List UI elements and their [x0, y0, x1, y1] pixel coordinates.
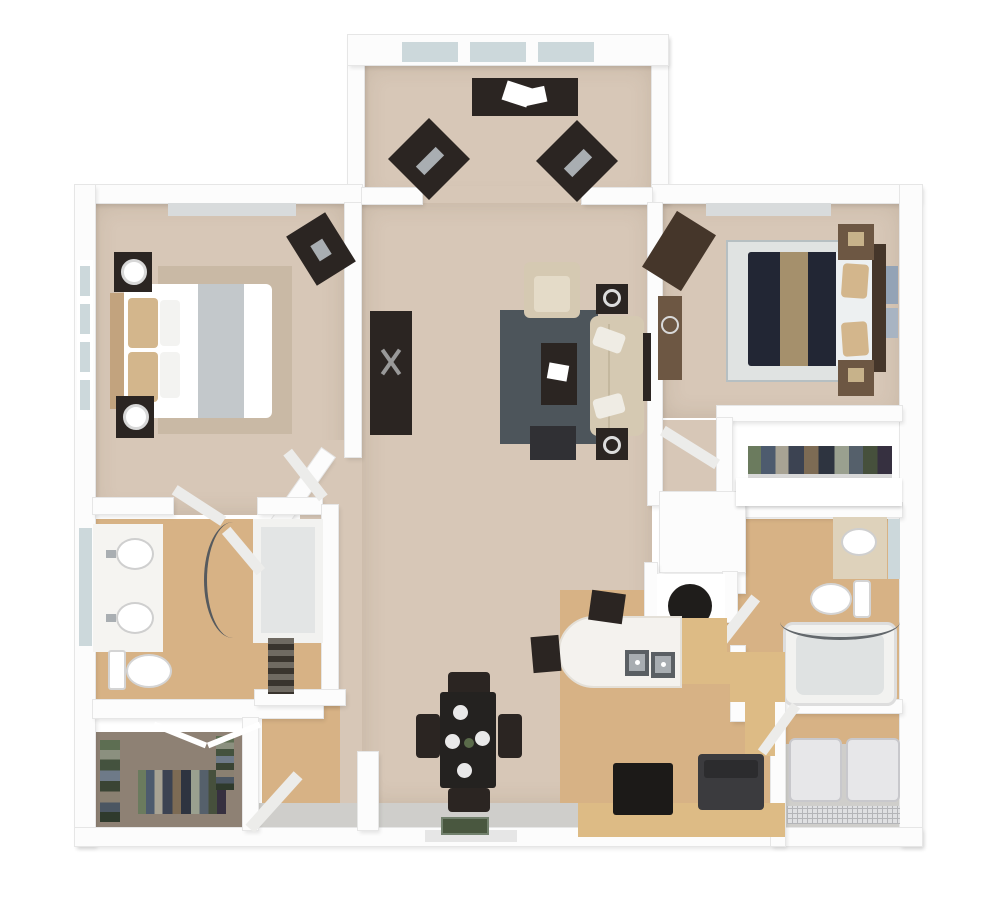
bar-stool	[530, 635, 561, 673]
masterbath-faucet	[106, 614, 116, 622]
bedroom2-pillow	[841, 321, 869, 357]
dining-chair	[448, 788, 490, 812]
master-left-window-pane	[80, 380, 90, 410]
bedroom2-bookshelf-mirror	[661, 316, 679, 334]
bedroom2-window-lintel	[706, 203, 831, 216]
entry-doormat	[441, 817, 489, 835]
coffee-table-papers	[547, 362, 569, 381]
dining-plate	[453, 705, 468, 720]
bedroom2-wall-art	[886, 266, 898, 304]
dining-chair	[498, 714, 522, 758]
kitchen-sink-drain	[635, 660, 640, 665]
ottoman	[530, 426, 576, 460]
masterbath-toilet-bowl	[126, 654, 172, 688]
dining-plate	[457, 763, 472, 778]
dining-centerpiece	[464, 738, 474, 748]
wall-sunroom-stub-left	[362, 188, 422, 204]
sunroom-window-pane	[402, 42, 458, 62]
master-left-window-pane	[80, 304, 90, 334]
bedroom2-bed-runner	[780, 252, 808, 366]
wall-sunroom-stub-right	[582, 188, 652, 204]
wall-mounted-tv	[643, 333, 651, 401]
closet2-clothes	[748, 446, 892, 474]
kitchen-sink-drain	[661, 662, 666, 667]
dryer	[846, 738, 900, 802]
master-bed-pillow	[160, 300, 180, 346]
refrigerator-top	[704, 760, 758, 778]
wall-bedroom2-bottom	[717, 406, 902, 421]
bedroom2-nightstand-frame	[848, 232, 864, 246]
masterbath-sink	[116, 538, 154, 570]
tv-console	[370, 311, 412, 435]
wall-top-left	[75, 185, 362, 203]
wall-outer-right	[900, 185, 922, 846]
kitchen-range	[613, 763, 673, 815]
wall-nook-block	[660, 492, 745, 572]
wall-master-east	[345, 203, 361, 457]
walkin-clothes	[100, 740, 120, 822]
floor-plan-canvas	[0, 0, 1000, 898]
master-left-window-pane	[80, 342, 90, 372]
dining-plate	[445, 734, 460, 749]
side-table-speaker	[603, 436, 621, 454]
closet2-shelf	[736, 478, 902, 506]
master-left-window-pane	[80, 266, 90, 296]
master-window-lintel	[168, 203, 296, 216]
bath2-mirror	[888, 519, 900, 579]
side-table-speaker	[603, 289, 621, 307]
bedroom2-nightstand-frame	[848, 368, 864, 382]
bedroom2-headboard	[872, 244, 886, 372]
masterbath-mirror	[79, 528, 92, 646]
master-bed-pillow	[128, 352, 158, 402]
bedroom2-pillow	[841, 263, 869, 299]
bedroom2-bookshelf	[658, 296, 682, 380]
wall-masterbath-top-b	[258, 498, 322, 514]
sunroom-window-pane	[538, 42, 594, 62]
masterbath-faucet	[106, 550, 116, 558]
bath2-shower-rod	[780, 604, 900, 640]
sunroom-window-pane	[470, 42, 526, 62]
masterbath-sink	[116, 602, 154, 634]
master-bed-runner	[198, 284, 244, 418]
wall-hall-tile-east	[358, 752, 378, 830]
bedroom2-wall-art	[886, 308, 898, 338]
master-bed-pillow	[160, 352, 180, 398]
dining-plate	[475, 731, 490, 746]
laundry-wire-shelf	[787, 806, 900, 824]
masterbath-shower-interior	[261, 527, 315, 633]
bath2-sink	[841, 528, 877, 556]
wall-masterbath-east	[322, 505, 338, 705]
masterbath-toilet-tank	[108, 650, 126, 690]
master-lamp	[123, 404, 149, 430]
walkin-clothes	[138, 770, 226, 814]
master-bed-pillow	[128, 298, 158, 348]
master-lamp	[121, 259, 147, 285]
armchair-cushion	[534, 276, 570, 312]
wall-masterbath-top-a	[93, 498, 173, 514]
bar-stool	[588, 590, 626, 624]
masterbath-towel-shelf	[268, 638, 294, 694]
bath2-tub-interior	[796, 633, 884, 695]
washer	[789, 738, 842, 802]
wall-top-right	[652, 185, 920, 203]
dining-chair	[416, 714, 440, 758]
